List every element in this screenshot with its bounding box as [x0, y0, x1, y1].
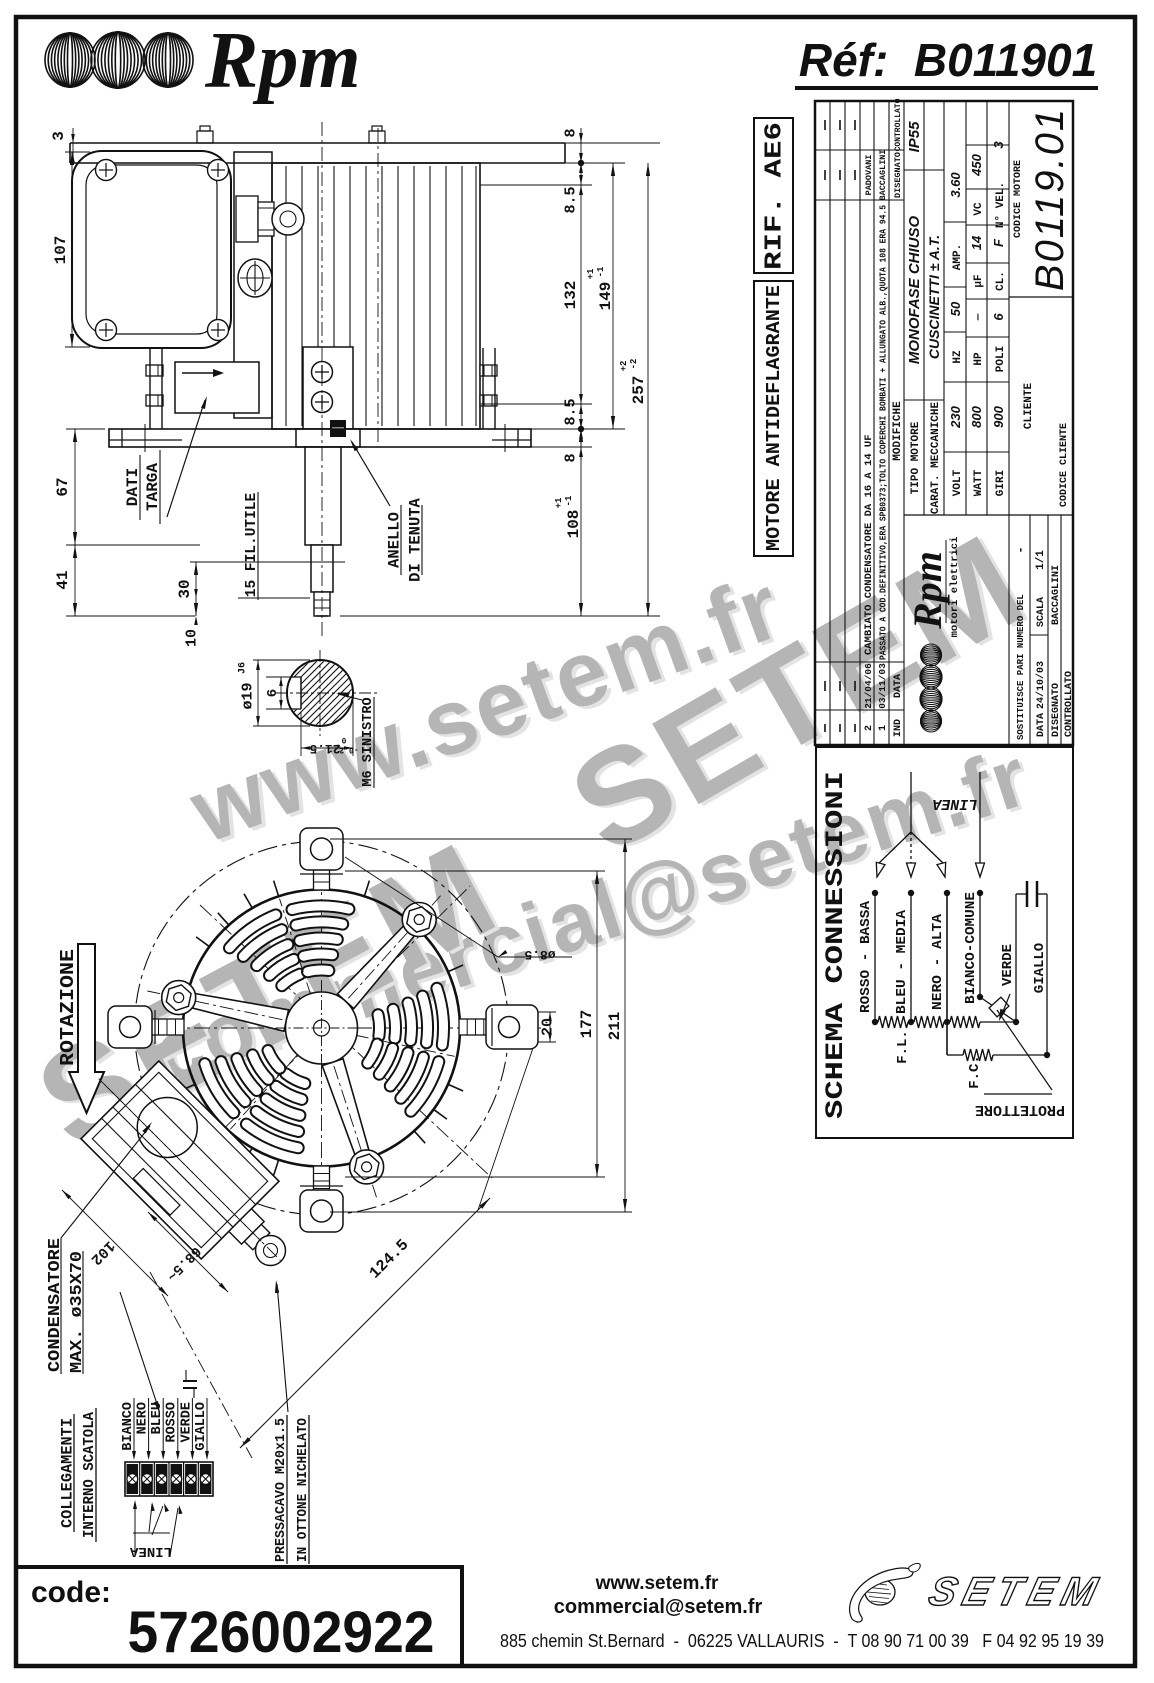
svg-text:-: - [1014, 546, 1028, 553]
svg-text:TARGA: TARGA [144, 463, 162, 511]
svg-text:B0119.01: B0119.01 [1028, 107, 1072, 291]
svg-text:MOTORE ANTIDEFLAGRANTE: MOTORE ANTIDEFLAGRANTE [763, 285, 785, 551]
svg-text:PROTETTORE: PROTETTORE [975, 1101, 1065, 1118]
svg-text:6: 6 [991, 313, 1006, 321]
svg-text:PASSATO A COD.DEFINITIVO,ERA S: PASSATO A COD.DEFINITIVO,ERA SPB0373;TOL… [879, 205, 889, 660]
svg-text:DISEGNATO: DISEGNATO [893, 152, 903, 198]
svg-text:SOSTITUISCE PARI NUMERO DEL: SOSTITUISCE PARI NUMERO DEL [1016, 594, 1026, 740]
svg-text:F: F [991, 238, 1006, 247]
svg-text:+1: +1 [586, 268, 596, 279]
svg-text:3.60: 3.60 [948, 172, 963, 198]
svg-text:GIALLO: GIALLO [1032, 943, 1048, 993]
svg-text:BLEU - MEDIA: BLEU - MEDIA [894, 909, 910, 1014]
svg-text:1: 1 [878, 725, 889, 731]
svg-text:F.L.: F.L. [895, 1030, 911, 1064]
svg-text:ROTAZIONE: ROTAZIONE [57, 949, 79, 1066]
svg-text:8: 8 [562, 453, 579, 462]
svg-text:N° VEL.: N° VEL. [995, 182, 1007, 228]
svg-text:800: 800 [969, 405, 984, 427]
svg-text:-1: -1 [564, 495, 574, 506]
svg-text:Rpm: Rpm [905, 551, 950, 630]
svg-text:WATT: WATT [973, 469, 985, 496]
svg-text:CARAT. MECCANICHE: CARAT. MECCANICHE [930, 401, 942, 514]
svg-text:67: 67 [54, 477, 72, 496]
svg-text:HZ: HZ [952, 350, 964, 364]
svg-text:Réf: B011901: Réf: B011901 [799, 34, 1097, 86]
svg-text:20: 20 [539, 1018, 556, 1036]
svg-text:-0.2: -0.2 [339, 745, 358, 754]
svg-text:257: 257 [630, 376, 648, 405]
svg-text:+2: +2 [619, 361, 629, 372]
svg-text:900: 900 [991, 405, 1006, 427]
svg-text:149: 149 [597, 282, 615, 311]
svg-text:0: 0 [341, 735, 346, 744]
svg-text:μF: μF [973, 274, 985, 287]
svg-text:AMP.: AMP. [952, 244, 964, 270]
svg-text:VC: VC [973, 202, 985, 216]
svg-text:RIF. AE6: RIF. AE6 [762, 122, 789, 270]
svg-text:CLIENTE: CLIENTE [1023, 383, 1035, 430]
svg-text:IND: IND [893, 719, 904, 737]
svg-text:DATI: DATI [124, 468, 142, 506]
svg-text:21.5: 21.5 [309, 741, 340, 756]
svg-text:21/04/06: 21/04/06 [863, 663, 874, 709]
svg-text:24/10/03: 24/10/03 [1035, 661, 1047, 709]
svg-text:-2: -2 [629, 359, 639, 370]
svg-text:03/11/03: 03/11/03 [877, 663, 888, 709]
svg-text:GIRI: GIRI [995, 470, 1007, 496]
svg-text:BACCAGLINI: BACCAGLINI [1051, 565, 1062, 625]
svg-text:10: 10 [183, 629, 200, 647]
svg-text:ø19: ø19 [239, 682, 256, 709]
svg-text:VERDE: VERDE [1000, 944, 1016, 986]
svg-text:CONTROLLATO: CONTROLLATO [894, 98, 903, 151]
svg-text:LINEA: LINEA [129, 1543, 172, 1559]
svg-text:code:: code: [31, 1576, 111, 1609]
svg-text:1/1: 1/1 [1035, 550, 1047, 570]
svg-text:PADOVANI: PADOVANI [864, 155, 874, 196]
svg-text:8: 8 [562, 128, 579, 137]
svg-text:MONOFASE CHIUSO: MONOFASE CHIUSO [906, 216, 923, 365]
svg-text:132: 132 [562, 281, 580, 310]
svg-text:3: 3 [991, 141, 1006, 149]
svg-text:SCHEMA CONNESSIONI: SCHEMA CONNESSIONI [821, 771, 850, 1119]
svg-text:230: 230 [948, 405, 963, 428]
svg-text:F.C.: F.C. [967, 1055, 983, 1089]
svg-text:CL.: CL. [995, 271, 1007, 291]
svg-text:211: 211 [606, 1012, 624, 1041]
svg-text:—: — [973, 313, 985, 321]
svg-text:CODICE MOTORE: CODICE MOTORE [1013, 160, 1024, 238]
svg-text:6: 6 [265, 689, 281, 697]
svg-text:LINEA: LINEA [932, 795, 977, 812]
svg-text:CONDENSATORE: CONDENSATORE [46, 1238, 65, 1372]
svg-text:J6: J6 [238, 662, 249, 674]
svg-text:CONTROLLATO: CONTROLLATO [1064, 671, 1075, 737]
svg-text:CODICE CLIENTE: CODICE CLIENTE [1059, 423, 1070, 507]
svg-text:885 chemin St.Bernard - 0622: 885 chemin St.Bernard - 06225 VALLAURIS … [500, 1631, 1104, 1651]
svg-text:commercial@setem.fr: commercial@setem.fr [554, 1596, 763, 1618]
svg-text:DATA: DATA [1036, 713, 1047, 737]
svg-text:CUSCINETTI ± A.T.: CUSCINETTI ± A.T. [926, 235, 942, 359]
svg-text:+1: +1 [554, 497, 564, 508]
svg-text:8.5: 8.5 [562, 398, 579, 425]
svg-text:2: 2 [864, 725, 875, 731]
svg-text:177: 177 [578, 1010, 596, 1039]
svg-text:5726002922: 5726002922 [128, 1600, 435, 1665]
svg-text:HP: HP [973, 352, 985, 366]
svg-text:14: 14 [969, 235, 984, 250]
svg-text:450: 450 [969, 153, 984, 176]
svg-text:DATA: DATA [893, 674, 904, 698]
svg-text:SETEM: SETEM [924, 1569, 1108, 1614]
svg-text:3: 3 [50, 131, 68, 141]
svg-text:8.5: 8.5 [562, 186, 579, 213]
svg-text:SCALA: SCALA [1036, 597, 1047, 627]
svg-text:motori elettrici: motori elettrici [949, 537, 961, 638]
svg-text:41: 41 [54, 570, 72, 589]
svg-text:Rpm: Rpm [204, 17, 361, 105]
svg-text:POLI: POLI [995, 346, 1007, 372]
svg-text:30: 30 [176, 579, 194, 598]
svg-text:50: 50 [948, 301, 963, 316]
svg-text:MAX. ø35X70: MAX. ø35X70 [68, 1251, 87, 1373]
svg-text:MODIFICHE: MODIFICHE [892, 401, 904, 461]
svg-text:BACCAGLINI: BACCAGLINI [878, 149, 888, 200]
svg-text:www.setem.fr: www.setem.fr [595, 1573, 719, 1594]
svg-text:CAMBIATO CONDENSATORE DA 16 A: CAMBIATO CONDENSATORE DA 16 A 14 UF [863, 434, 875, 655]
svg-text:NERO - ALTA: NERO - ALTA [930, 913, 946, 1010]
svg-text:107: 107 [52, 236, 70, 265]
svg-text:TIPO MOTORE: TIPO MOTORE [910, 421, 922, 494]
svg-text:-1: -1 [596, 266, 606, 277]
svg-text:ø8.5: ø8.5 [524, 947, 555, 962]
svg-text:108: 108 [565, 510, 583, 539]
svg-text:BIANCO-COMUNE: BIANCO-COMUNE [963, 892, 979, 1004]
svg-text:IP55: IP55 [906, 121, 923, 153]
svg-text:VOLT: VOLT [952, 469, 964, 496]
svg-text:DISEGNATO: DISEGNATO [1051, 683, 1062, 737]
svg-text:ROSSO - BASSA: ROSSO - BASSA [858, 900, 874, 1013]
